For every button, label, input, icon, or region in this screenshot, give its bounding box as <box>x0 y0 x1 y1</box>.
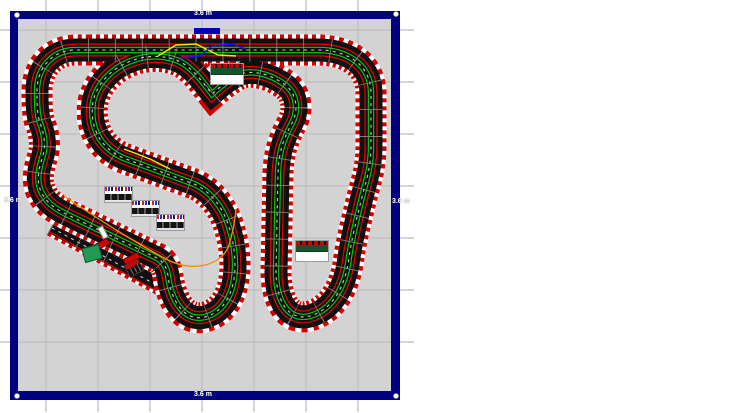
handle-bottom-left <box>14 393 19 398</box>
track-designer-canvas: 3.6 m3.6 m3.6 m3.6 m <box>0 0 736 413</box>
grandstand-large-1-r2 <box>211 68 243 75</box>
grandstand-large-2-r4 <box>296 257 328 261</box>
grandstand-large-1-r4 <box>211 80 243 84</box>
layout-drawing <box>0 0 736 413</box>
dimension-label-right: 3.6 m <box>388 198 414 206</box>
grandstand-small-1[interactable] <box>104 186 133 203</box>
handle-bottom-right <box>393 393 398 398</box>
handle-top-left <box>14 12 19 17</box>
dimension-label-bottom: 3.6 m <box>190 391 216 399</box>
grandstand-large-2[interactable] <box>295 240 329 262</box>
handle-top-right <box>393 11 398 16</box>
grandstand-small-3[interactable] <box>156 214 185 231</box>
lap-counter-marker[interactable] <box>194 28 220 34</box>
grandstand-small-1-r4 <box>105 200 132 202</box>
grandstand-small-2-r4 <box>132 214 159 216</box>
grandstand-small-3-r4 <box>157 228 184 230</box>
grandstand-large-1[interactable] <box>210 63 244 85</box>
dimension-label-top: 3.6 m <box>190 10 216 18</box>
dimension-label-left: 3.6 m <box>0 197 26 205</box>
grandstand-large-2-r2 <box>296 245 328 252</box>
